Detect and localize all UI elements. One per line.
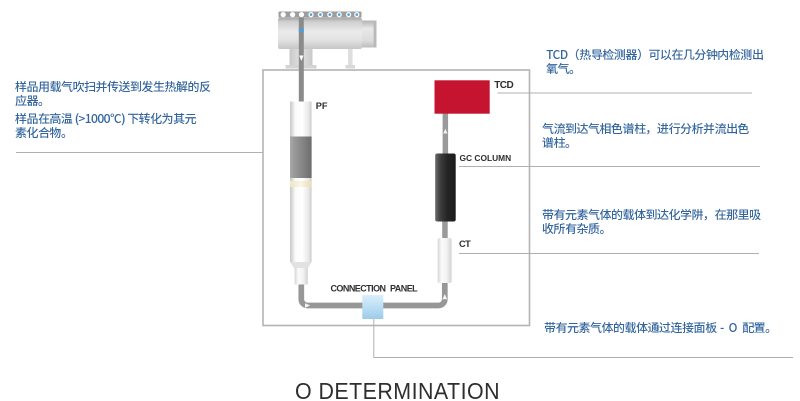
svg-text:TCD: TCD xyxy=(494,80,513,91)
svg-text:CT: CT xyxy=(459,239,471,249)
svg-text:CONNECTION PANEL: CONNECTION PANEL xyxy=(330,283,418,293)
svg-text:GC COLUMN: GC COLUMN xyxy=(460,153,512,163)
svg-text:PF: PF xyxy=(316,101,328,111)
